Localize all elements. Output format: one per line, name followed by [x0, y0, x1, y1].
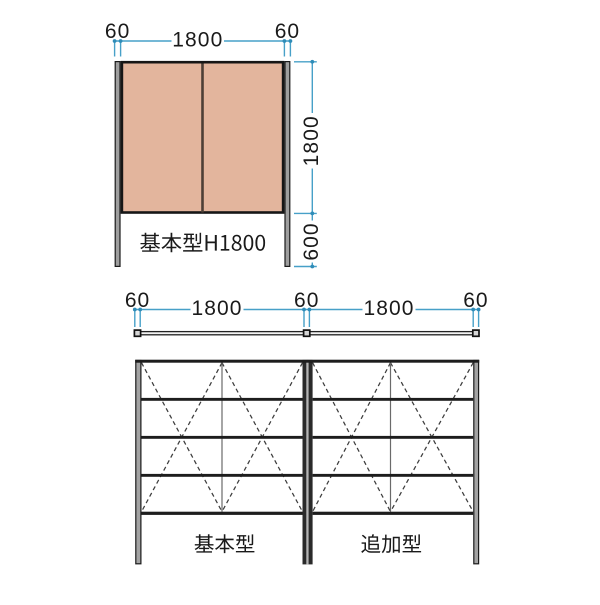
- svg-text:60: 60: [105, 20, 130, 43]
- svg-text:60: 60: [275, 20, 300, 43]
- svg-text:1800: 1800: [191, 297, 242, 320]
- svg-text:60: 60: [125, 289, 150, 312]
- svg-text:60: 60: [463, 289, 488, 312]
- svg-text:1800: 1800: [300, 115, 323, 166]
- svg-text:600: 600: [300, 222, 323, 260]
- svg-text:1800: 1800: [363, 297, 414, 320]
- svg-text:60: 60: [294, 289, 319, 312]
- svg-text:1800: 1800: [172, 29, 223, 52]
